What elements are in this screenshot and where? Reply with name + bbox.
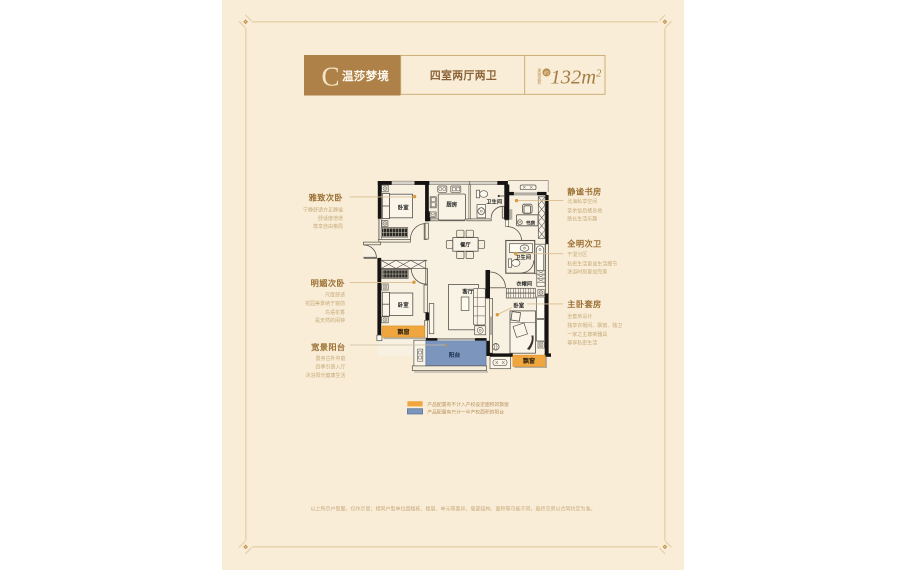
svg-text:C: C [321, 62, 339, 92]
svg-text:飘窗: 飘窗 [396, 328, 409, 336]
svg-text:私密生活更显生活细节: 私密生活更显生活细节 [567, 260, 617, 267]
svg-text:置身古朴中庭: 置身古朴中庭 [315, 355, 345, 362]
svg-text:产品配置有只计一半产权面积的阳台: 产品配置有只计一半产权面积的阳台 [427, 408, 504, 415]
svg-text:一家之主尊荣器具: 一家之主尊荣器具 [567, 331, 607, 338]
svg-text:舒适度倍增: 舒适度倍增 [318, 215, 343, 222]
svg-text:产品配置有不计入产权设定面积的飘窗: 产品配置有不计入产权设定面积的飘窗 [427, 401, 509, 408]
svg-text:宁静舒适方正静谧: 宁静舒适方正静谧 [303, 206, 343, 213]
svg-text:全明次卫: 全明次卫 [566, 239, 601, 249]
svg-text:北海私享空间: 北海私享空间 [567, 198, 597, 205]
svg-text:厨房: 厨房 [446, 200, 457, 208]
svg-text:卧室: 卧室 [398, 301, 409, 309]
svg-text:尊享私密生活: 尊享私密生活 [567, 340, 597, 347]
svg-text:阳台: 阳台 [449, 351, 461, 359]
svg-text:卧室: 卧室 [398, 204, 409, 212]
svg-text:茶余饭后栖息地: 茶余饭后栖息地 [567, 207, 602, 214]
svg-text:尺度舒适: 尺度舒适 [325, 292, 345, 299]
svg-text:约: 约 [544, 69, 549, 76]
svg-text:是天然的闹钟: 是天然的闹钟 [315, 317, 345, 324]
svg-text:花园美景纳于窗前: 花园美景纳于窗前 [305, 300, 345, 307]
svg-text:四室两厅两卫: 四室两厅两卫 [430, 68, 497, 82]
svg-text:132m2: 132m2 [551, 67, 603, 89]
svg-text:温莎梦境: 温莎梦境 [342, 69, 389, 83]
svg-text:主卧套房: 主卧套房 [567, 299, 601, 309]
svg-text:客厅: 客厅 [461, 287, 474, 295]
svg-text:卫生间: 卫生间 [486, 199, 502, 206]
svg-text:沐浴阳光健康生活: 沐浴阳光健康生活 [305, 372, 345, 379]
svg-text:全套房设计: 全套房设计 [567, 313, 592, 320]
svg-text:洗浴时刻更加完美: 洗浴时刻更加完美 [567, 269, 607, 276]
svg-text:卧室: 卧室 [513, 301, 524, 309]
svg-text:以上所示户型图，仅作示意；相同户型单位因楼栋、楼层、单元等差: 以上所示户型图，仅作示意；相同户型单位因楼栋、楼层、单元等差异，局部结构、面积等… [310, 506, 595, 513]
svg-text:明媚次卧: 明媚次卧 [311, 278, 346, 288]
svg-text:四季引景入厅: 四季引景入厅 [315, 363, 345, 370]
svg-text:餐厅: 餐厅 [459, 241, 471, 249]
svg-text:助长生活乐趣: 助长生活乐趣 [567, 216, 597, 223]
svg-text:干湿分区: 干湿分区 [567, 251, 587, 258]
svg-text:雅致次卧: 雅致次卧 [308, 192, 344, 202]
svg-text:尊享自由格局: 尊享自由格局 [313, 223, 343, 230]
svg-text:鸟语花香: 鸟语花香 [325, 309, 345, 316]
svg-text:飘窗: 飘窗 [522, 357, 535, 365]
svg-text:独享衣帽间、飘窗、独卫: 独享衣帽间、飘窗、独卫 [567, 322, 622, 329]
svg-text:宽景阳台: 宽景阳台 [310, 342, 345, 352]
svg-text:衣帽间: 衣帽间 [516, 280, 532, 287]
svg-text:静谧书房: 静谧书房 [567, 187, 601, 197]
svg-text:建筑面积: 建筑面积 [537, 67, 541, 85]
svg-text:书房: 书房 [526, 220, 536, 227]
